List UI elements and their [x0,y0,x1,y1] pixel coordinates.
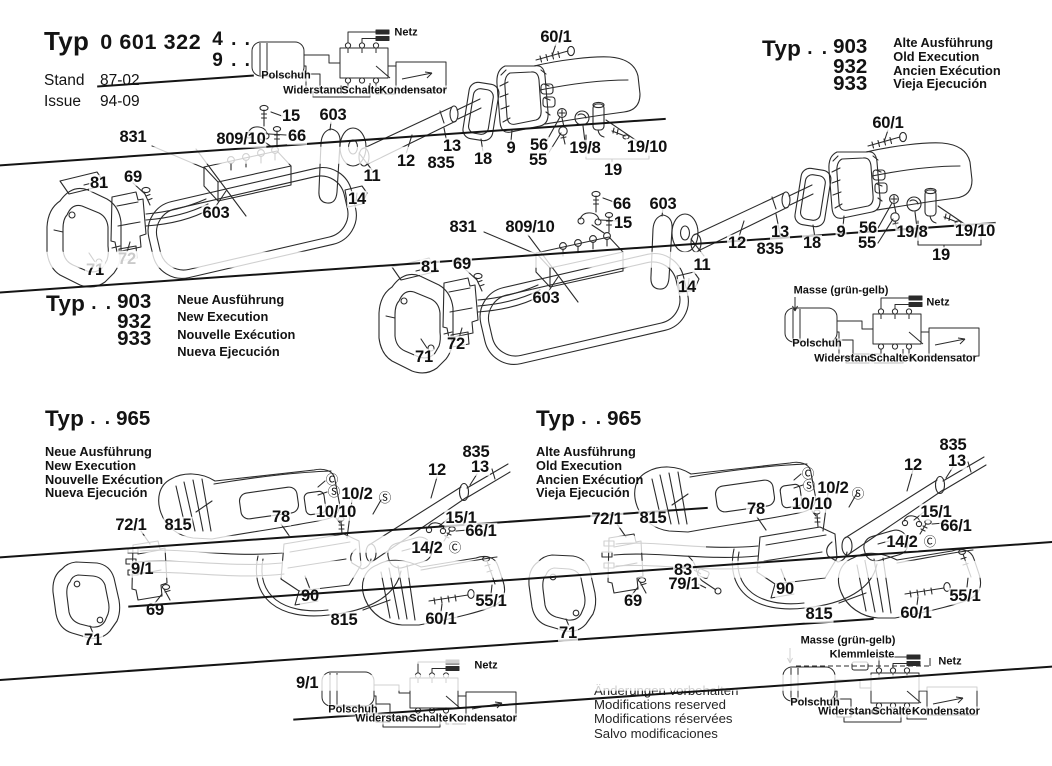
part-label-19: 19 [931,247,951,264]
wiring-label-widerstand: Widerstand [818,707,878,718]
part-label-78: 78 [746,501,766,518]
part-label-809-1: 809/1 [0,147,664,164]
part-label-71: 71 [414,349,434,366]
part-label-11: 11 [692,257,711,274]
part-label-19-8: 19/8 [895,224,928,241]
part-label-66: 66 [287,128,307,145]
part-label-60-1: 60/1 [871,115,904,132]
part-label-9: 9 [506,140,517,157]
part-label-9-1: 9/1 [0,647,872,664]
part-label-81: 81 [89,175,109,192]
part-label-66-1: 66/1 [464,523,497,540]
part-label-12: 12 [396,153,416,170]
mark-: Ⓢ [852,488,865,501]
wiring-label-widerstand: Widerstand [283,86,343,97]
part-label-72: 72 [446,336,466,353]
wiring-label-kondensator: Kondensator [449,714,517,725]
wiring-label-klemmleiste: Klemmleiste [830,650,895,661]
part-label-603: 603 [319,107,348,124]
part-label-815: 815 [164,517,193,534]
part-label-10-2: 10/2 [816,480,849,497]
part-label-13: 13 [470,459,490,476]
label-layer: 831809/1809/10156660360360/1121383518956… [0,0,1052,766]
part-label-11: 11 [362,168,381,185]
wiring-label-kondensator: Kondensator [912,707,980,718]
part-label-9: 9 [836,224,847,241]
part-label-18: 18 [802,235,822,252]
wiring-label-netz: Netz [926,298,949,309]
part-label-831: 831 [119,129,148,146]
part-label-19-10: 19/10 [954,223,996,240]
part-label-66-1: 66/1 [939,518,972,535]
part-label-12: 12 [727,235,747,252]
part-label-9-1: 9/1 [130,561,1052,578]
part-label-55: 55 [528,152,548,169]
part-label-72-1: 72/1 [114,517,147,534]
part-label-66: 66 [612,196,632,213]
part-label-815: 815 [639,510,668,527]
part-label-603: 603 [649,196,678,213]
mark-: Ⓒ [924,536,937,549]
wiring-label-masse-grün-gelb: Masse (grün-gelb) [794,286,889,297]
part-label-15: 15 [281,108,301,125]
part-label-60-1: 60/1 [539,29,572,46]
part-label-815: 815 [330,612,359,629]
part-label-60-1: 60/1 [424,611,457,628]
part-label-815: 815 [805,606,834,623]
part-label-13: 13 [947,453,967,470]
part-label-15: 15 [613,215,633,232]
wiring-label-masse-grün-gelb: Masse (grün-gelb) [801,636,896,647]
part-label-19-10: 19/10 [626,139,668,156]
part-label-835: 835 [427,155,456,172]
part-label-18: 18 [473,151,493,168]
part-label-10-10: 10/10 [315,504,357,521]
mark-: Ⓢ [803,480,816,493]
part-label-69: 69 [623,593,643,610]
wiring-label-polschuh: Polschuh [792,339,842,350]
part-label-14-2: 14/2 [885,534,918,551]
wiring-label-schalter: Schalter [409,714,452,725]
wiring-label-schalter: Schalter [872,707,915,718]
part-label-14: 14 [347,191,367,208]
part-label-55: 55 [857,235,877,252]
parts-diagram-page: Typ 0 601 322 4 . . 9 . . Stand 87-02 Is… [0,0,1052,766]
part-label-13: 13 [442,138,462,155]
part-label-9-1: 9/1 [0,536,706,553]
part-label-13: 13 [770,224,790,241]
part-label-90: 90 [775,581,795,598]
part-label-69: 69 [123,169,143,186]
part-label-9-1: 9/1 [295,674,1052,691]
part-label-71: 71 [83,632,103,649]
part-label-14-2: 14/2 [410,540,443,557]
part-label-835: 835 [756,241,785,258]
wiring-label-widerstand: Widerstand [814,354,874,365]
part-label-12: 12 [427,462,447,479]
part-label-81: 81 [420,259,440,276]
part-label-831: 831 [449,219,478,236]
wiring-label-widerstand: Widerstand [355,714,415,725]
part-label-12: 12 [903,457,923,474]
part-label-55-1: 55/1 [474,593,507,610]
wiring-label-netz: Netz [938,657,961,668]
part-label-10-10: 10/10 [791,496,833,513]
wiring-label-polschuh: Polschuh [261,71,311,82]
part-label-69: 69 [452,256,472,273]
mark-: Ⓢ [328,486,341,499]
part-label-809-10: 809/10 [504,219,555,236]
part-label-809-10: 809/10 [215,131,266,148]
part-label-603: 603 [202,205,231,222]
part-label-19-8: 19/8 [568,140,601,157]
part-label-79-1: 79/1 [667,576,700,593]
part-label-71: 71 [558,625,578,642]
part-label-19: 19 [603,162,623,179]
part-label-55-1: 55/1 [948,588,981,605]
wiring-label-netz: Netz [394,28,417,39]
part-label-60-1: 60/1 [899,605,932,622]
part-label-603: 603 [532,290,561,307]
part-label-809-1: 809/1 [0,251,994,268]
part-label-14: 14 [677,279,697,296]
wiring-label-kondensator: Kondensator [379,86,447,97]
part-label-72-1: 72/1 [590,511,623,528]
part-label-10-2: 10/2 [340,486,373,503]
wiring-label-schalter: Schalter [869,354,912,365]
part-label-90: 90 [300,588,320,605]
part-label-78: 78 [271,509,291,526]
wiring-label-kondensator: Kondensator [909,354,977,365]
wiring-label-netz: Netz [474,661,497,672]
mark-: Ⓒ [449,542,462,555]
mark-: Ⓢ [379,492,392,505]
